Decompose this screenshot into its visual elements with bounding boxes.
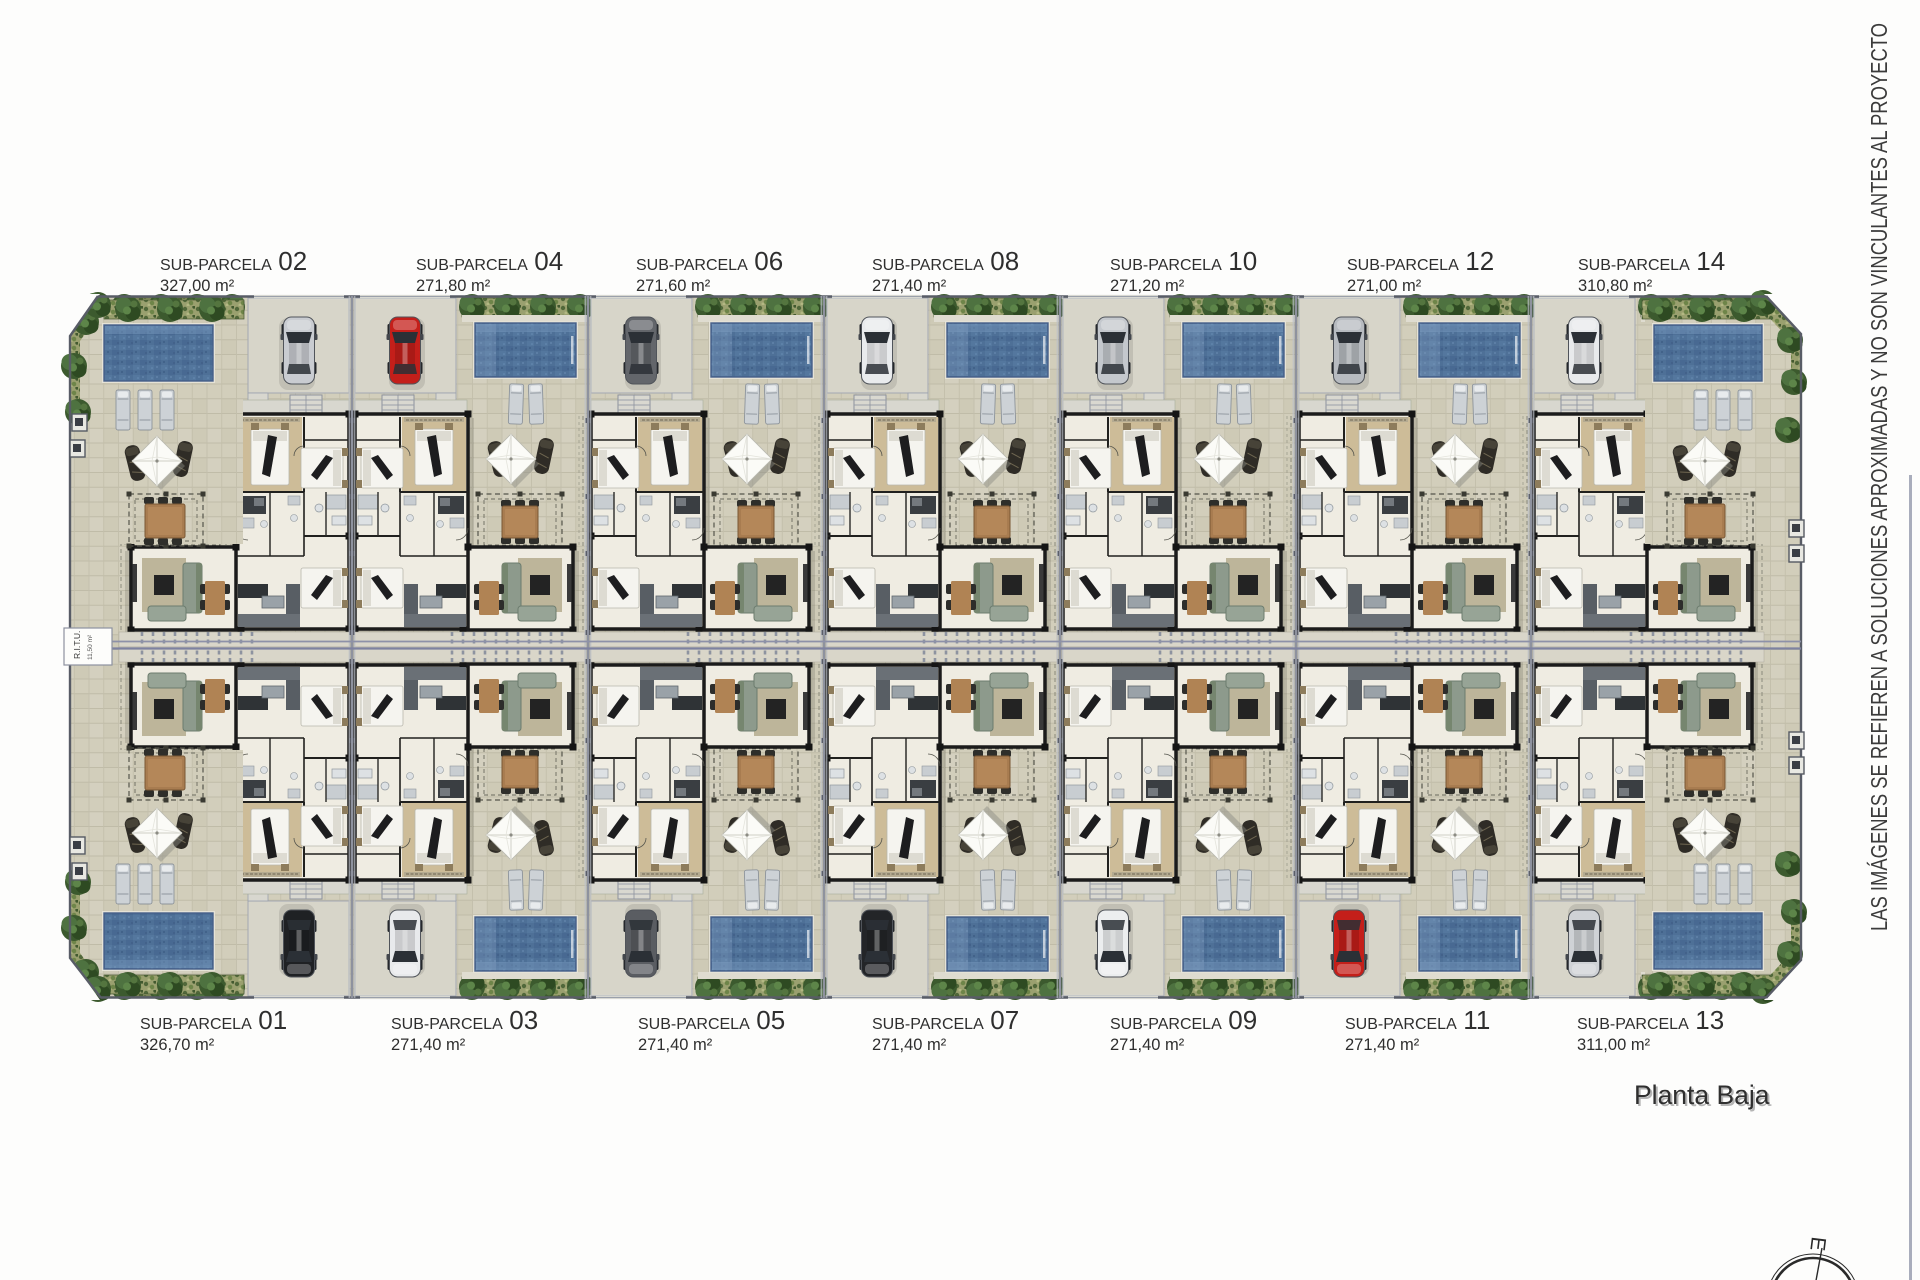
svg-text:271,60 m²: 271,60 m² [636, 277, 711, 295]
svg-text:271,00 m²: 271,00 m² [1347, 277, 1422, 295]
svg-text:310,80 m²: 310,80 m² [1578, 277, 1653, 295]
svg-text:271,40 m²: 271,40 m² [638, 1036, 713, 1054]
svg-text:271,40 m²: 271,40 m² [1345, 1036, 1420, 1054]
svg-text:Planta Baja: Planta Baja [1634, 1080, 1770, 1110]
svg-text:271,40 m²: 271,40 m² [872, 277, 947, 295]
svg-text:E: E [1805, 1235, 1830, 1252]
svg-text:311,00 m²: 311,00 m² [1577, 1036, 1651, 1054]
svg-text:11,50 m²: 11,50 m² [87, 634, 94, 660]
svg-text:271,40 m²: 271,40 m² [1110, 1036, 1185, 1054]
svg-text:326,70 m²: 326,70 m² [140, 1036, 215, 1054]
svg-text:271,40 m²: 271,40 m² [872, 1036, 947, 1054]
svg-text:R.I.T.U.: R.I.T.U. [72, 631, 82, 659]
svg-text:271,20 m²: 271,20 m² [1110, 277, 1185, 295]
svg-text:271,40 m²: 271,40 m² [391, 1036, 466, 1054]
svg-text:271,80 m²: 271,80 m² [416, 277, 491, 295]
svg-text:LAS IMÁGENES SE REFIEREN A SOL: LAS IMÁGENES SE REFIEREN A SOLUCIONES AP… [1866, 23, 1892, 931]
svg-text:327,00 m²: 327,00 m² [160, 277, 235, 295]
